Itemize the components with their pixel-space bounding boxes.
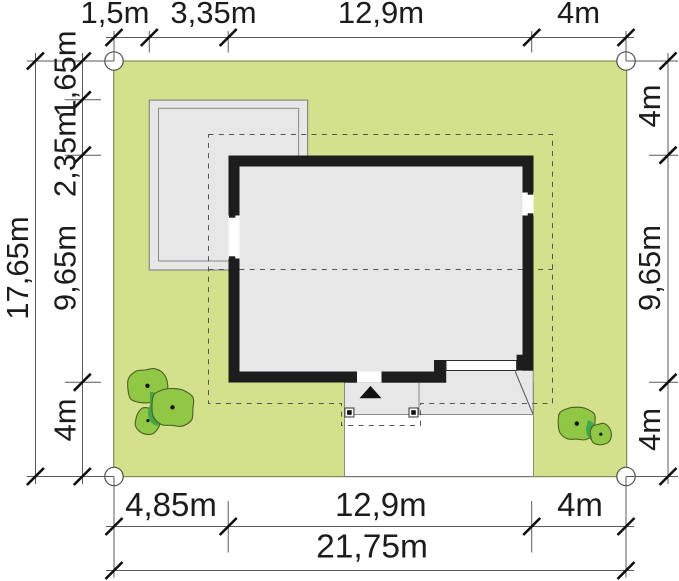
svg-text:4m: 4m [632,408,667,451]
svg-text:12,9m: 12,9m [335,486,427,523]
svg-text:4m: 4m [557,0,600,30]
svg-text:4,85m: 4,85m [125,486,217,523]
svg-text:4m: 4m [48,398,83,441]
svg-text:17,65m: 17,65m [0,216,35,319]
svg-text:21,75m: 21,75m [316,529,428,566]
svg-text:3,35m: 3,35m [170,0,256,30]
svg-text:4m: 4m [557,486,603,523]
svg-text:1,5m: 1,5m [81,0,150,30]
svg-text:9,65m: 9,65m [48,225,83,311]
svg-text:2,35m: 2,35m [48,111,83,197]
svg-text:4m: 4m [632,84,667,127]
svg-text:12,9m: 12,9m [338,0,424,30]
svg-text:9,65m: 9,65m [632,225,667,311]
svg-text:1,65m: 1,65m [48,30,83,116]
